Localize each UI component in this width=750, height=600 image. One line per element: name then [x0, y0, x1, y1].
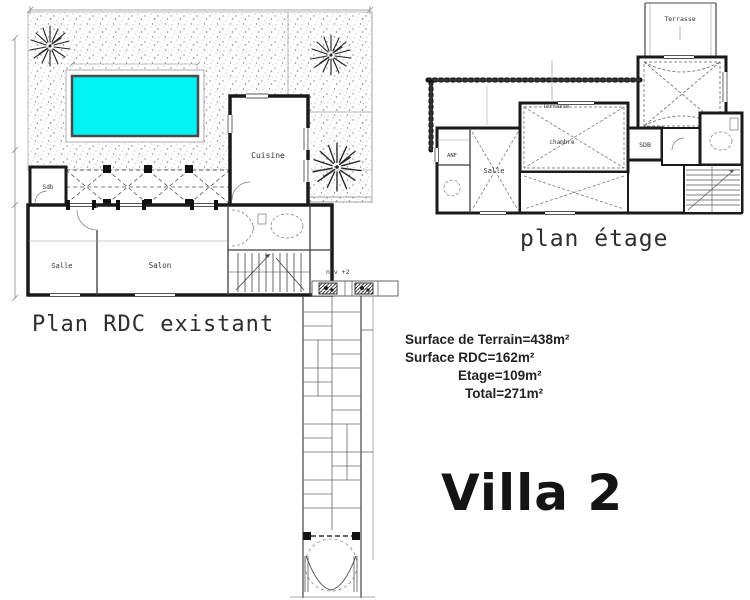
architectural-sheet: Cuisine Sdb Salle Salon niv +2: [0, 0, 750, 600]
room-label-salle-etage: Salle: [483, 167, 504, 175]
villa-title: Villa 2: [441, 464, 623, 522]
surface-summary: Surface de Terrain=438m² Surface RDC=162…: [405, 331, 569, 403]
planter-icon: [355, 283, 373, 294]
surface-etage: Etage=109m²: [458, 367, 569, 385]
surface-total: Total=271m²: [465, 385, 569, 403]
surface-rdc: Surface RDC=162m²: [405, 349, 569, 367]
rdc-plan: Cuisine Sdb Salle Salon niv +2: [12, 6, 398, 301]
staircase-etage: [684, 165, 742, 213]
room-label-chambre: chambre: [549, 139, 575, 146]
room-label-anf: ANF: [447, 153, 457, 159]
surface-terrain: Surface de Terrain=438m²: [405, 331, 569, 349]
etage-plan-title: plan étage: [520, 226, 668, 252]
room-label-terrasse-mid: Terrasse: [543, 104, 570, 110]
room-label-terrasse-top: Terrasse: [664, 15, 695, 23]
driveway: [290, 296, 375, 598]
room-label-sdb-etage: SDB: [639, 141, 651, 149]
room-label-sdb-rdc: Sdb: [43, 184, 54, 191]
paving-joints: [303, 296, 373, 530]
room-label-salon: Salon: [149, 261, 172, 270]
planter-icon: [319, 283, 337, 294]
room-label-cuisine: Cuisine: [251, 151, 285, 160]
site-plan-svg: Cuisine Sdb Salle Salon niv +2: [0, 0, 750, 600]
pergola: [66, 165, 230, 207]
room-label-salle-rdc: Salle: [51, 262, 72, 270]
swimming-pool: [66, 62, 204, 142]
level-note: niv +2: [326, 268, 350, 276]
terrace-top: [645, 3, 716, 57]
planter-band: [312, 281, 398, 296]
main-building-rdc: [28, 200, 332, 299]
rdc-plan-title: Plan RDC existant: [32, 312, 274, 337]
etage-plan: Terrasse Terrasse ANF Salle chambre SDB: [428, 3, 742, 217]
